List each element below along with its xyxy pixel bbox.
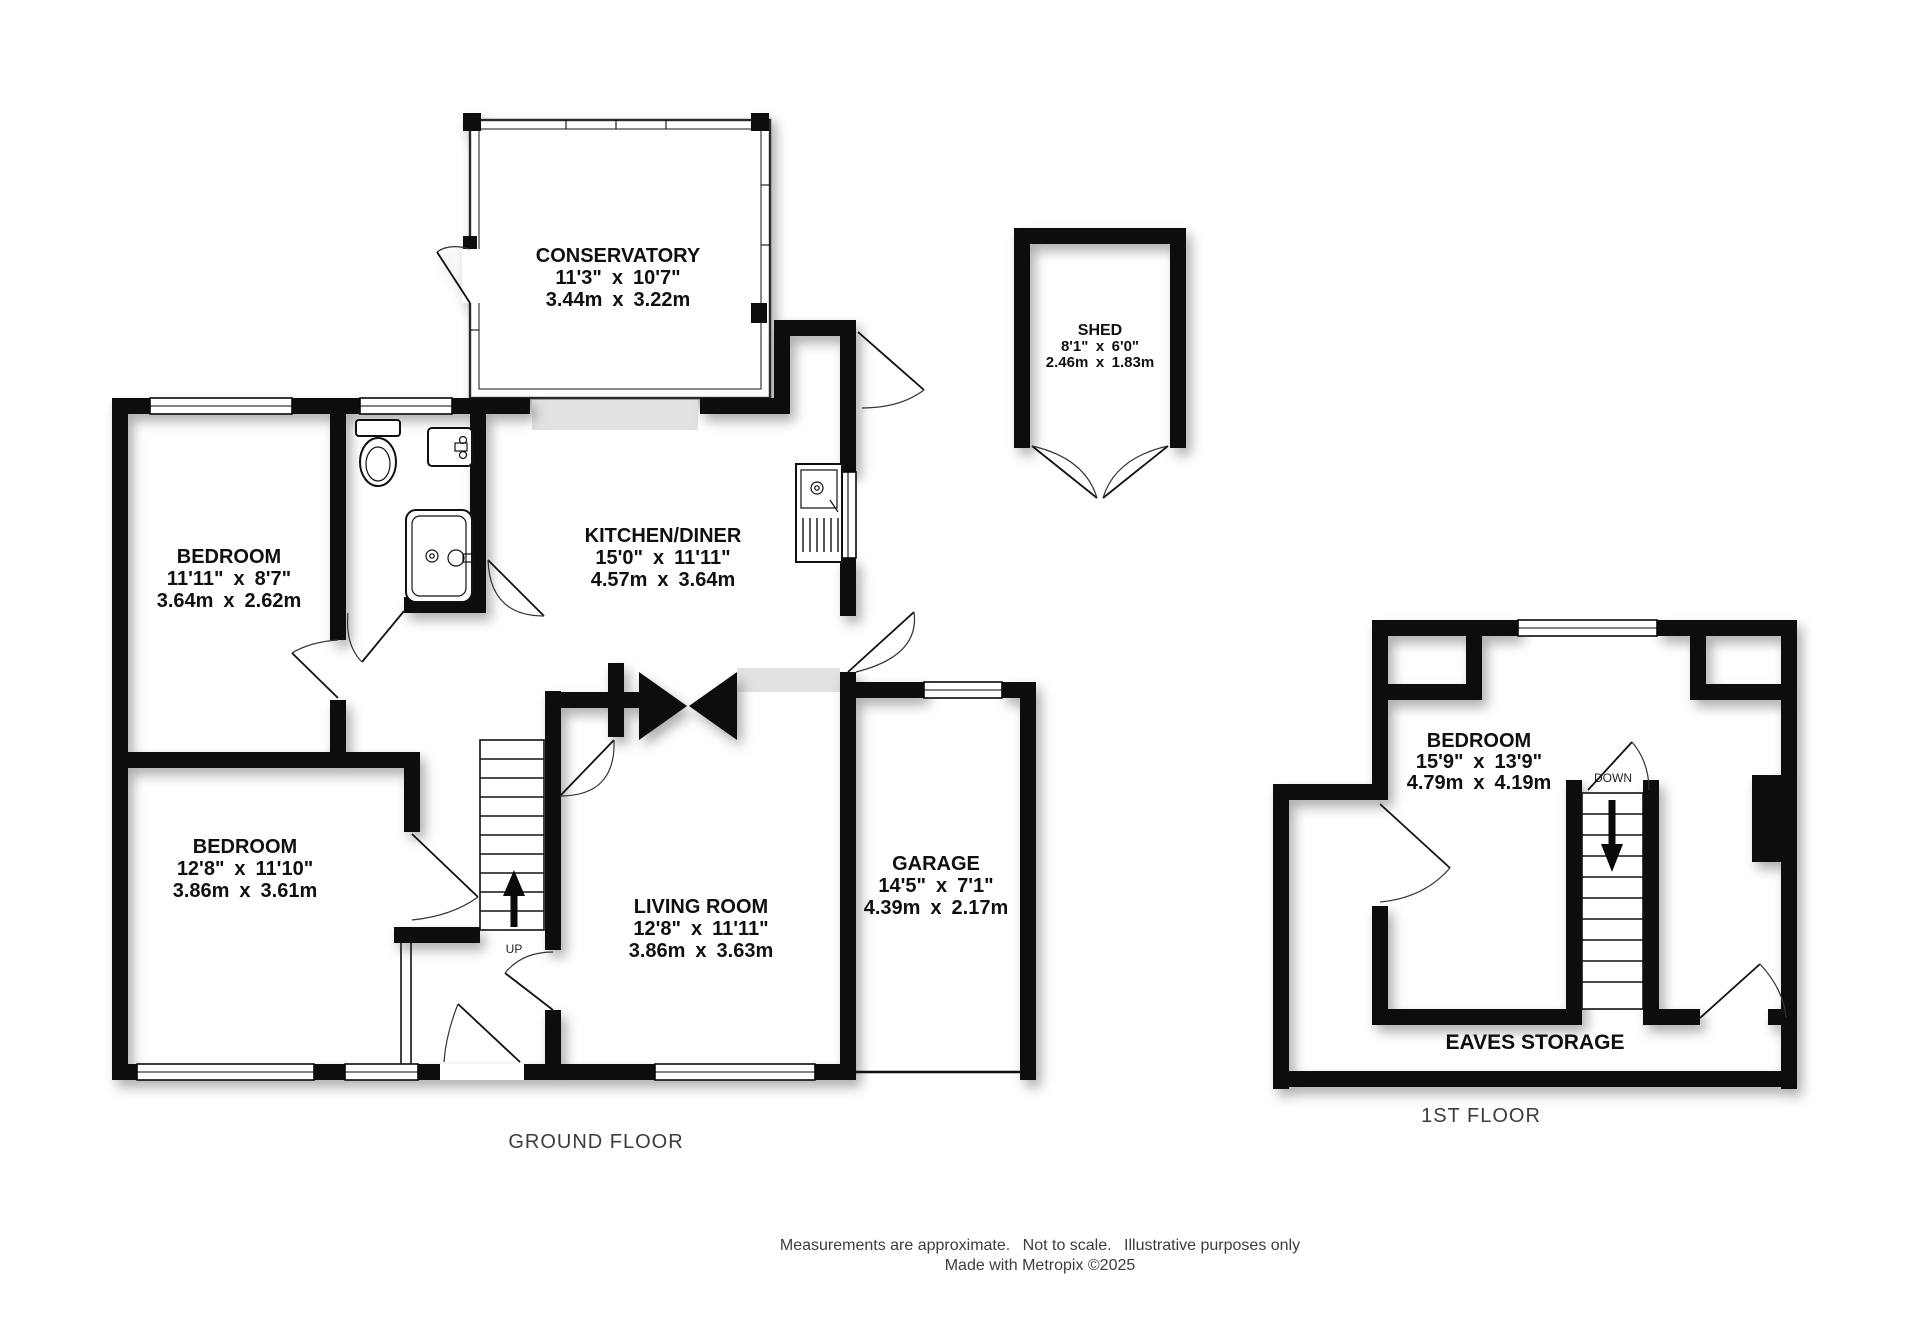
conservatory-corner-post bbox=[751, 113, 769, 131]
conservatory-corner-post bbox=[463, 113, 481, 131]
first-floor-label: 1ST FLOOR bbox=[1421, 1105, 1541, 1127]
staircase-up: UP bbox=[480, 740, 544, 956]
room-dims-imperial: 15'0" x 11'11" bbox=[595, 547, 730, 569]
thin-partition bbox=[401, 943, 411, 1064]
room-dims-metric: 4.39m x 2.17m bbox=[864, 897, 1009, 919]
wall-segment bbox=[1659, 1009, 1700, 1025]
first-floor-windows bbox=[1518, 620, 1657, 636]
shed-labels: SHED 8'1" x 6'0" 2.46m x 1.83m bbox=[1046, 322, 1154, 371]
wall-segment bbox=[1781, 620, 1797, 775]
door bbox=[292, 640, 338, 698]
room-label-shed: SHED bbox=[1078, 322, 1122, 339]
wall-segment bbox=[1657, 620, 1797, 636]
wall-segment bbox=[840, 672, 856, 682]
ground-floor-label: GROUND FLOOR bbox=[508, 1131, 683, 1153]
door bbox=[505, 952, 553, 1010]
window bbox=[150, 398, 292, 414]
stairs-up-label: UP bbox=[506, 942, 523, 956]
wall-segment bbox=[330, 398, 346, 640]
wall-segment bbox=[1020, 682, 1036, 1080]
door bbox=[858, 332, 924, 408]
room-label-eaves-storage: EAVES STORAGE bbox=[1446, 1031, 1625, 1054]
room-dims-metric: 4.79m x 4.19m bbox=[1407, 772, 1552, 794]
room-dims-imperial: 11'11" x 8'7" bbox=[167, 568, 291, 590]
toilet-icon bbox=[356, 420, 400, 486]
wall-segment bbox=[1768, 1009, 1797, 1025]
ground-floor-walls bbox=[112, 320, 1036, 1080]
window bbox=[655, 1064, 815, 1080]
room-label-garage: GARAGE bbox=[892, 853, 980, 875]
floorplan-canvas: UP CONSERVATORY 11'3" x 10'7" 3.44m x 3.… bbox=[0, 0, 1920, 1333]
kitchen-living-opening bbox=[737, 668, 840, 692]
wall-segment bbox=[112, 752, 420, 768]
conservatory-kitchen-opening bbox=[532, 400, 698, 430]
room-dims-imperial: 12'8" x 11'11" bbox=[633, 918, 768, 940]
wall-segment bbox=[545, 692, 639, 708]
room-label-conservatory: CONSERVATORY bbox=[536, 245, 701, 267]
room-dims-metric: 2.46m x 1.83m bbox=[1046, 354, 1154, 371]
room-dims-metric: 4.57m x 3.64m bbox=[591, 569, 736, 591]
door bbox=[488, 560, 544, 616]
chimney-breast bbox=[1752, 775, 1797, 862]
conservatory-corner-post bbox=[463, 236, 477, 249]
room-dims-imperial: 11'3" x 10'7" bbox=[555, 267, 680, 289]
wall-segment bbox=[1372, 906, 1388, 1025]
wall-segment bbox=[1372, 620, 1388, 800]
room-label-bedroom1: BEDROOM bbox=[177, 546, 281, 568]
first-floor-plan: BEDROOM 15'9" x 13'9" 4.79m x 4.19m DOWN… bbox=[1273, 620, 1797, 1127]
wall-segment bbox=[1372, 1009, 1566, 1025]
wall-segment bbox=[608, 663, 624, 737]
wall-segment bbox=[840, 698, 856, 1080]
door bbox=[412, 834, 478, 920]
bathtub-icon bbox=[406, 510, 472, 602]
disclaimer-line2: Made with Metropix ©2025 bbox=[945, 1257, 1136, 1274]
washbasin-icon bbox=[428, 428, 472, 466]
wall-segment bbox=[1566, 780, 1582, 1025]
front-door-opening bbox=[440, 1064, 524, 1080]
window bbox=[924, 682, 1002, 698]
footer-notes: Measurements are approximate. Not to sca… bbox=[780, 1237, 1300, 1274]
window bbox=[137, 1064, 314, 1080]
room-label-bedroom2: BEDROOM bbox=[193, 836, 297, 858]
room-dims-imperial: 12'8" x 11'10" bbox=[177, 858, 313, 880]
staircase-down bbox=[1582, 793, 1643, 1009]
door bbox=[560, 740, 614, 796]
room-dims-imperial: 14'5" x 7'1" bbox=[878, 875, 993, 897]
wall-segment bbox=[840, 682, 924, 698]
window bbox=[360, 398, 452, 414]
wall-segment bbox=[840, 558, 856, 616]
wall-segment bbox=[394, 927, 480, 943]
door bbox=[1380, 804, 1450, 902]
double-door-leaf bbox=[639, 672, 687, 740]
ground-floor-windows bbox=[137, 398, 1002, 1080]
wall-segment bbox=[1372, 620, 1518, 636]
ground-floor-plan: UP CONSERVATORY 11'3" x 10'7" 3.44m x 3.… bbox=[112, 113, 1036, 1153]
window bbox=[1518, 620, 1657, 636]
room-dims-metric: 3.44m x 3.22m bbox=[546, 289, 691, 311]
room-label-living: LIVING ROOM bbox=[634, 896, 768, 918]
floorplan-page: UP CONSERVATORY 11'3" x 10'7" 3.44m x 3.… bbox=[0, 0, 1920, 1333]
room-dims-imperial: 15'9" x 13'9" bbox=[1416, 751, 1542, 773]
wall-segment bbox=[1690, 684, 1797, 700]
wall-segment bbox=[1273, 784, 1388, 800]
conservatory-corner-post bbox=[751, 303, 767, 323]
first-floor-walls bbox=[1273, 620, 1797, 1089]
room-dims-metric: 3.64m x 2.62m bbox=[157, 590, 302, 612]
wall-segment bbox=[1014, 228, 1030, 448]
stairs-down-label: DOWN bbox=[1594, 771, 1632, 785]
wall-segment bbox=[545, 1010, 561, 1064]
disclaimer-line1: Measurements are approximate. Not to sca… bbox=[780, 1237, 1300, 1254]
wall-segment bbox=[404, 752, 420, 832]
bathroom-fixtures bbox=[356, 420, 472, 602]
wall-segment bbox=[840, 336, 856, 472]
kitchen-sink-icon bbox=[796, 464, 842, 562]
room-dims-metric: 3.86m x 3.63m bbox=[629, 940, 774, 962]
shed-plan: SHED 8'1" x 6'0" 2.46m x 1.83m bbox=[1014, 228, 1186, 498]
door bbox=[848, 612, 915, 672]
room-dims-metric: 3.86m x 3.61m bbox=[173, 880, 318, 902]
wall-segment bbox=[545, 691, 561, 950]
wall-segment bbox=[774, 320, 856, 336]
wall-segment bbox=[1273, 784, 1289, 1089]
door bbox=[444, 1004, 520, 1062]
wall-segment bbox=[1372, 684, 1482, 700]
window bbox=[345, 1064, 418, 1080]
wall-segment bbox=[1643, 780, 1659, 1025]
door bbox=[348, 611, 404, 662]
room-label-kitchen: KITCHEN/DINER bbox=[585, 525, 742, 547]
wall-segment bbox=[1273, 1071, 1797, 1087]
room-label-bedroom-first: BEDROOM bbox=[1427, 730, 1531, 752]
room-dims-imperial: 8'1" x 6'0" bbox=[1061, 338, 1139, 355]
wall-segment bbox=[1014, 228, 1186, 244]
wall-segment bbox=[1781, 862, 1797, 1089]
wall-segment bbox=[112, 398, 128, 1080]
double-door-leaf bbox=[689, 672, 737, 740]
wall-segment bbox=[1170, 228, 1186, 448]
shed-double-doors bbox=[1032, 446, 1168, 498]
